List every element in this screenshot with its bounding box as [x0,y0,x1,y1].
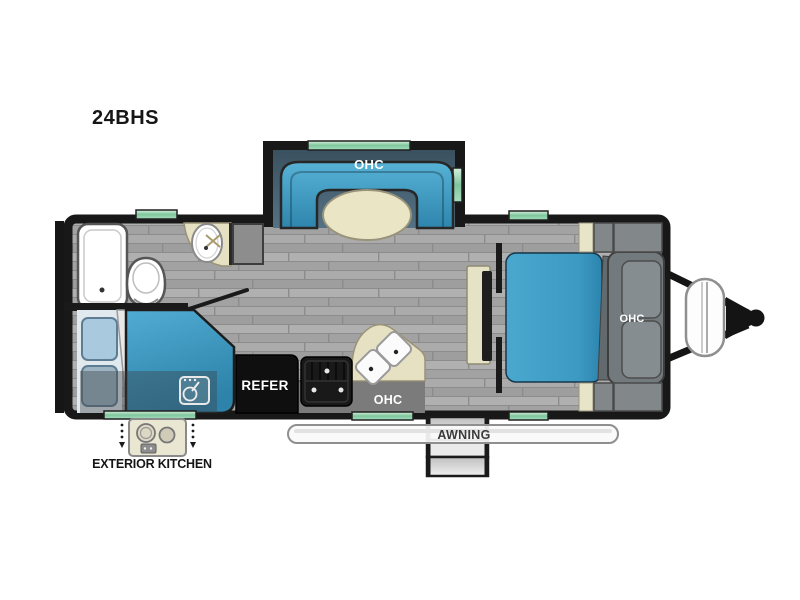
bedroom-ohc-label: OHC [619,313,644,325]
exterior-kitchen-sink-icon [180,377,209,404]
tub-icon [78,224,127,308]
bedroom-wall-lower [496,337,502,393]
bedroom-window-bottom [509,412,548,420]
refrigerator-label: REFER [241,378,288,393]
kitchen-ohc-label: OHC [374,393,402,407]
floorplan-diagram: 24BHS OHC [0,0,800,600]
propane-tanks-icon [686,279,724,356]
bathroom-window [136,210,177,219]
bedroom-wall-upper [496,243,502,293]
bed-icon [506,253,602,382]
tv-icon [482,271,492,361]
nightstand-bottom-icon [579,383,662,411]
nightstand-top-icon [579,223,662,252]
floorplan-page: 24BHS OHC [0,0,800,600]
bathroom-cabinet-icon [233,224,263,264]
slide-top-window [308,141,410,150]
bedroom-window-top [509,211,548,220]
slide-out-dinette: OHC [263,141,465,240]
model-title: 24BHS [92,107,159,129]
kitchen-window [352,412,413,420]
dinette-table-icon [323,190,411,240]
awning-bar-icon: AWNING [288,425,618,443]
bunk-beds [77,310,234,413]
awning-label: AWNING [437,428,490,442]
exterior-kitchen-label: EXTERIOR KITCHEN [92,457,212,471]
refrigerator-icon: REFER [236,355,298,413]
exterior-kitchen-hatch [104,411,196,419]
exterior-kitchen-cooktop-icon [119,419,196,456]
toilet-icon [127,258,165,306]
stove-icon [301,357,352,406]
slide-side-window [453,168,462,202]
dinette-ohc-label: OHC [354,157,384,172]
